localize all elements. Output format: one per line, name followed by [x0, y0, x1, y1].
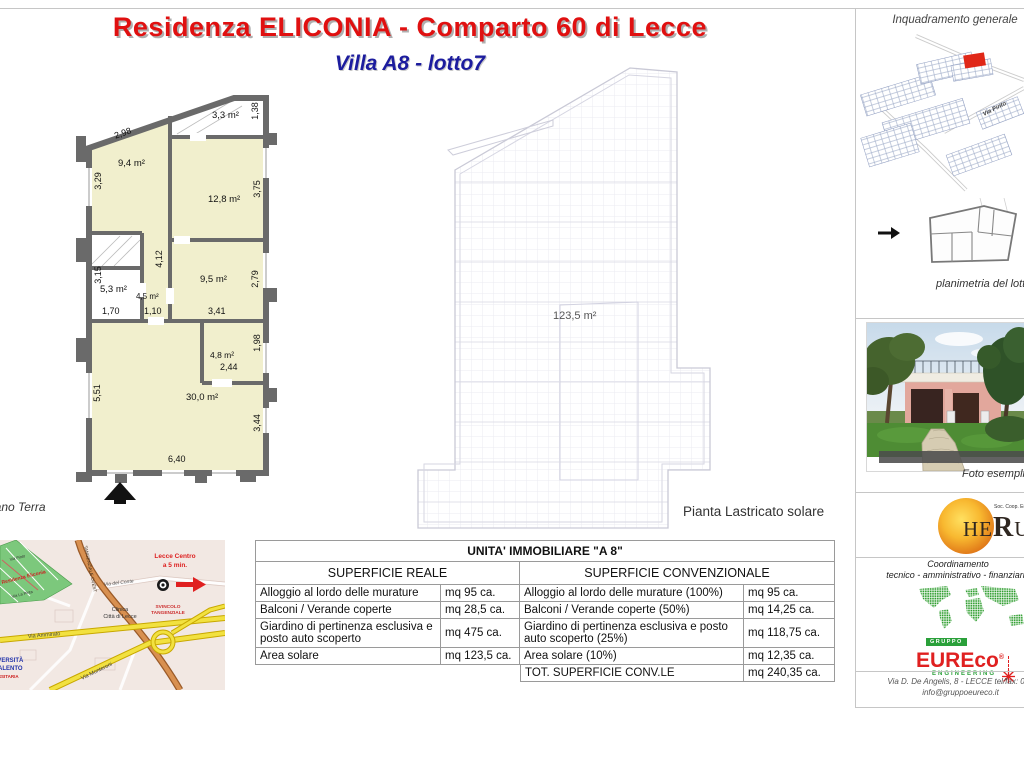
cell-value-real: mq 123,5 ca.	[441, 648, 520, 665]
cell-label-conv: Giardino di pertinenza esclusiva e posto…	[520, 619, 744, 648]
map-label: TANGENZIALE	[151, 610, 186, 616]
column-header-convenzionale: SUPERFICIE CONVENZIONALE	[520, 562, 835, 585]
page-title: Residenza ELICONIA - Comparto 60 di Lecc…	[60, 12, 760, 43]
lastricato-drawing	[405, 62, 725, 532]
table-row-total: TOT. SUPERFICIE CONV.LE mq 240,35 ca.	[255, 665, 835, 682]
herus-logo: Soc. Coop. Edilizia HERUS	[930, 496, 1024, 556]
coordinamento-text: Coordinamento tecnico - amministrativo -…	[858, 559, 1024, 581]
room-area-label: 5,3 m²	[100, 284, 127, 295]
surfaces-table: UNITA' IMMOBILIARE "A 8" SUPERFICIE REAL…	[255, 540, 835, 682]
cell-value-real: mq 95 ca.	[441, 585, 520, 602]
dimension-label: 3,41	[208, 306, 226, 316]
cell-label-conv: Alloggio al lordo delle murature (100%)	[520, 585, 744, 602]
room-area-label: 9,4 m²	[118, 158, 145, 169]
photo-caption: Foto esemplificativa	[962, 468, 1024, 480]
table-title: UNITA' IMMOBILIARE "A 8"	[255, 540, 835, 562]
cell-label-real: Area solare	[255, 648, 441, 665]
dimension-label: 2,79	[250, 270, 260, 288]
table-row: Alloggio al lordo delle murature mq 95 c…	[255, 585, 835, 602]
cell-label-real: Balconi / Verande coperte	[255, 602, 441, 619]
map-label: Lecce Centro	[154, 553, 195, 560]
lastricato-area-label: 123,5 m²	[553, 310, 596, 322]
room-area-label: 12,8 m²	[208, 194, 240, 205]
room-area-label: 30,0 m²	[186, 392, 218, 403]
sidebar-separator	[856, 557, 1024, 558]
world-map-icon	[915, 583, 1024, 633]
sidebar-separator	[856, 318, 1024, 319]
lastricato-plan: 123,5 m²	[405, 62, 725, 532]
map-label: UNIVERSITÀ	[0, 657, 24, 664]
dimension-label: 3,44	[252, 414, 262, 432]
inquadramento-title: Inquadramento generale	[880, 14, 1024, 26]
plan-sheet: Residenza ELICONIA - Comparto 60 di Lecc…	[0, 0, 1024, 768]
sidebar-separator	[856, 707, 1024, 708]
floor-plan: 3,3 m² 9,4 m² 12,8 m² 5,3 m² 4,5 m² 9,5 …	[62, 88, 302, 518]
eureco-gruppo-badge: GRUPPO	[926, 638, 967, 646]
inquadramento-map: Via Pinto	[856, 32, 1024, 194]
cell-label-conv: Area solare (10%)	[520, 648, 744, 665]
map-label: SALENTO	[0, 666, 23, 672]
dimension-label: 2,44	[220, 362, 238, 372]
table-row: Area solare mq 123,5 ca. Area solare (10…	[255, 648, 835, 665]
top-border	[0, 8, 1024, 9]
cell-value-real: mq 28,5 ca.	[441, 602, 520, 619]
cell-value-conv: mq 95 ca.	[744, 585, 835, 602]
table-row: Giardino di pertinenza esclusiva e posto…	[255, 619, 835, 648]
dimension-label: 3,15	[93, 266, 103, 284]
cell-label-real: Giardino di pertinenza esclusiva e posto…	[255, 619, 441, 648]
map-label: UNIVERSITARIA	[0, 674, 19, 679]
cell-label-real: Alloggio al lordo delle murature	[255, 585, 441, 602]
lot-plan	[922, 198, 1024, 276]
villa-photo	[866, 322, 1024, 472]
lastricato-caption: Pianta Lastricato solare	[683, 504, 824, 519]
cell-value-real: mq 475 ca.	[441, 619, 520, 648]
sidebar-separator	[856, 671, 1024, 672]
room-area-label: 3,3 m²	[212, 110, 239, 121]
north-arrow-icon	[104, 482, 136, 504]
eureco-logo: GRUPPO EUREco® ENGINEERING	[916, 630, 1024, 677]
map-label: Clinica	[112, 607, 129, 613]
map-label: Città di Lecce	[103, 614, 136, 620]
eureco-address: Via D. De Angelis, 8 - LECCE tel/fax: 08…	[858, 676, 1024, 698]
room-area-label: 9,5 m²	[200, 274, 227, 285]
inquadramento-drawing: Via Pinto	[856, 32, 1024, 194]
cell-label-conv: Balconi / Verande coperte (50%)	[520, 602, 744, 619]
map-label: a 5 min.	[163, 562, 187, 569]
cell-empty	[441, 665, 520, 682]
room-area-label: 4,5 m²	[136, 292, 159, 301]
dimension-label: 3,29	[93, 172, 103, 190]
floor-label: Piano Terra	[0, 500, 46, 514]
cell-value-conv: mq 118,75 ca.	[744, 619, 835, 648]
herus-name: HERUS	[963, 512, 1024, 544]
lot-plan-caption: planimetria del lotto	[936, 278, 1024, 290]
column-header-reale: SUPERFICIE REALE	[255, 562, 520, 585]
eureco-dashed-line	[1008, 656, 1009, 671]
map-label: SVINCOLO	[155, 604, 180, 610]
cell-value-conv: mq 12,35 ca.	[744, 648, 835, 665]
dimension-label: 3,75	[252, 180, 262, 198]
cell-total-label: TOT. SUPERFICIE CONV.LE	[520, 665, 744, 682]
location-map-drawing: Via Pinto Residenza Eliconia Via La Pint…	[0, 540, 225, 690]
cell-value-conv: mq 14,25 ca.	[744, 602, 835, 619]
dimension-label: 1,10	[144, 306, 162, 316]
dimension-label: 5,51	[92, 384, 102, 402]
cell-empty	[255, 665, 441, 682]
dimension-label: 1,70	[102, 306, 120, 316]
cell-total-value: mq 240,35 ca.	[744, 665, 835, 682]
dimension-label: 1,98	[252, 334, 262, 352]
room-area-label: 4,8 m²	[210, 350, 234, 360]
location-map: Via Pinto Residenza Eliconia Via La Pint…	[0, 540, 225, 690]
dimension-label: 4,12	[154, 250, 164, 268]
dimension-label: 6,40	[168, 454, 186, 464]
sidebar-separator	[856, 492, 1024, 493]
dimension-label: 1,38	[250, 102, 260, 120]
table-row: Balconi / Verande coperte mq 28,5 ca. Ba…	[255, 602, 835, 619]
pointer-arrow-icon	[878, 226, 900, 245]
target-icon	[157, 579, 169, 591]
herus-tagline: Soc. Coop. Edilizia	[994, 504, 1024, 510]
